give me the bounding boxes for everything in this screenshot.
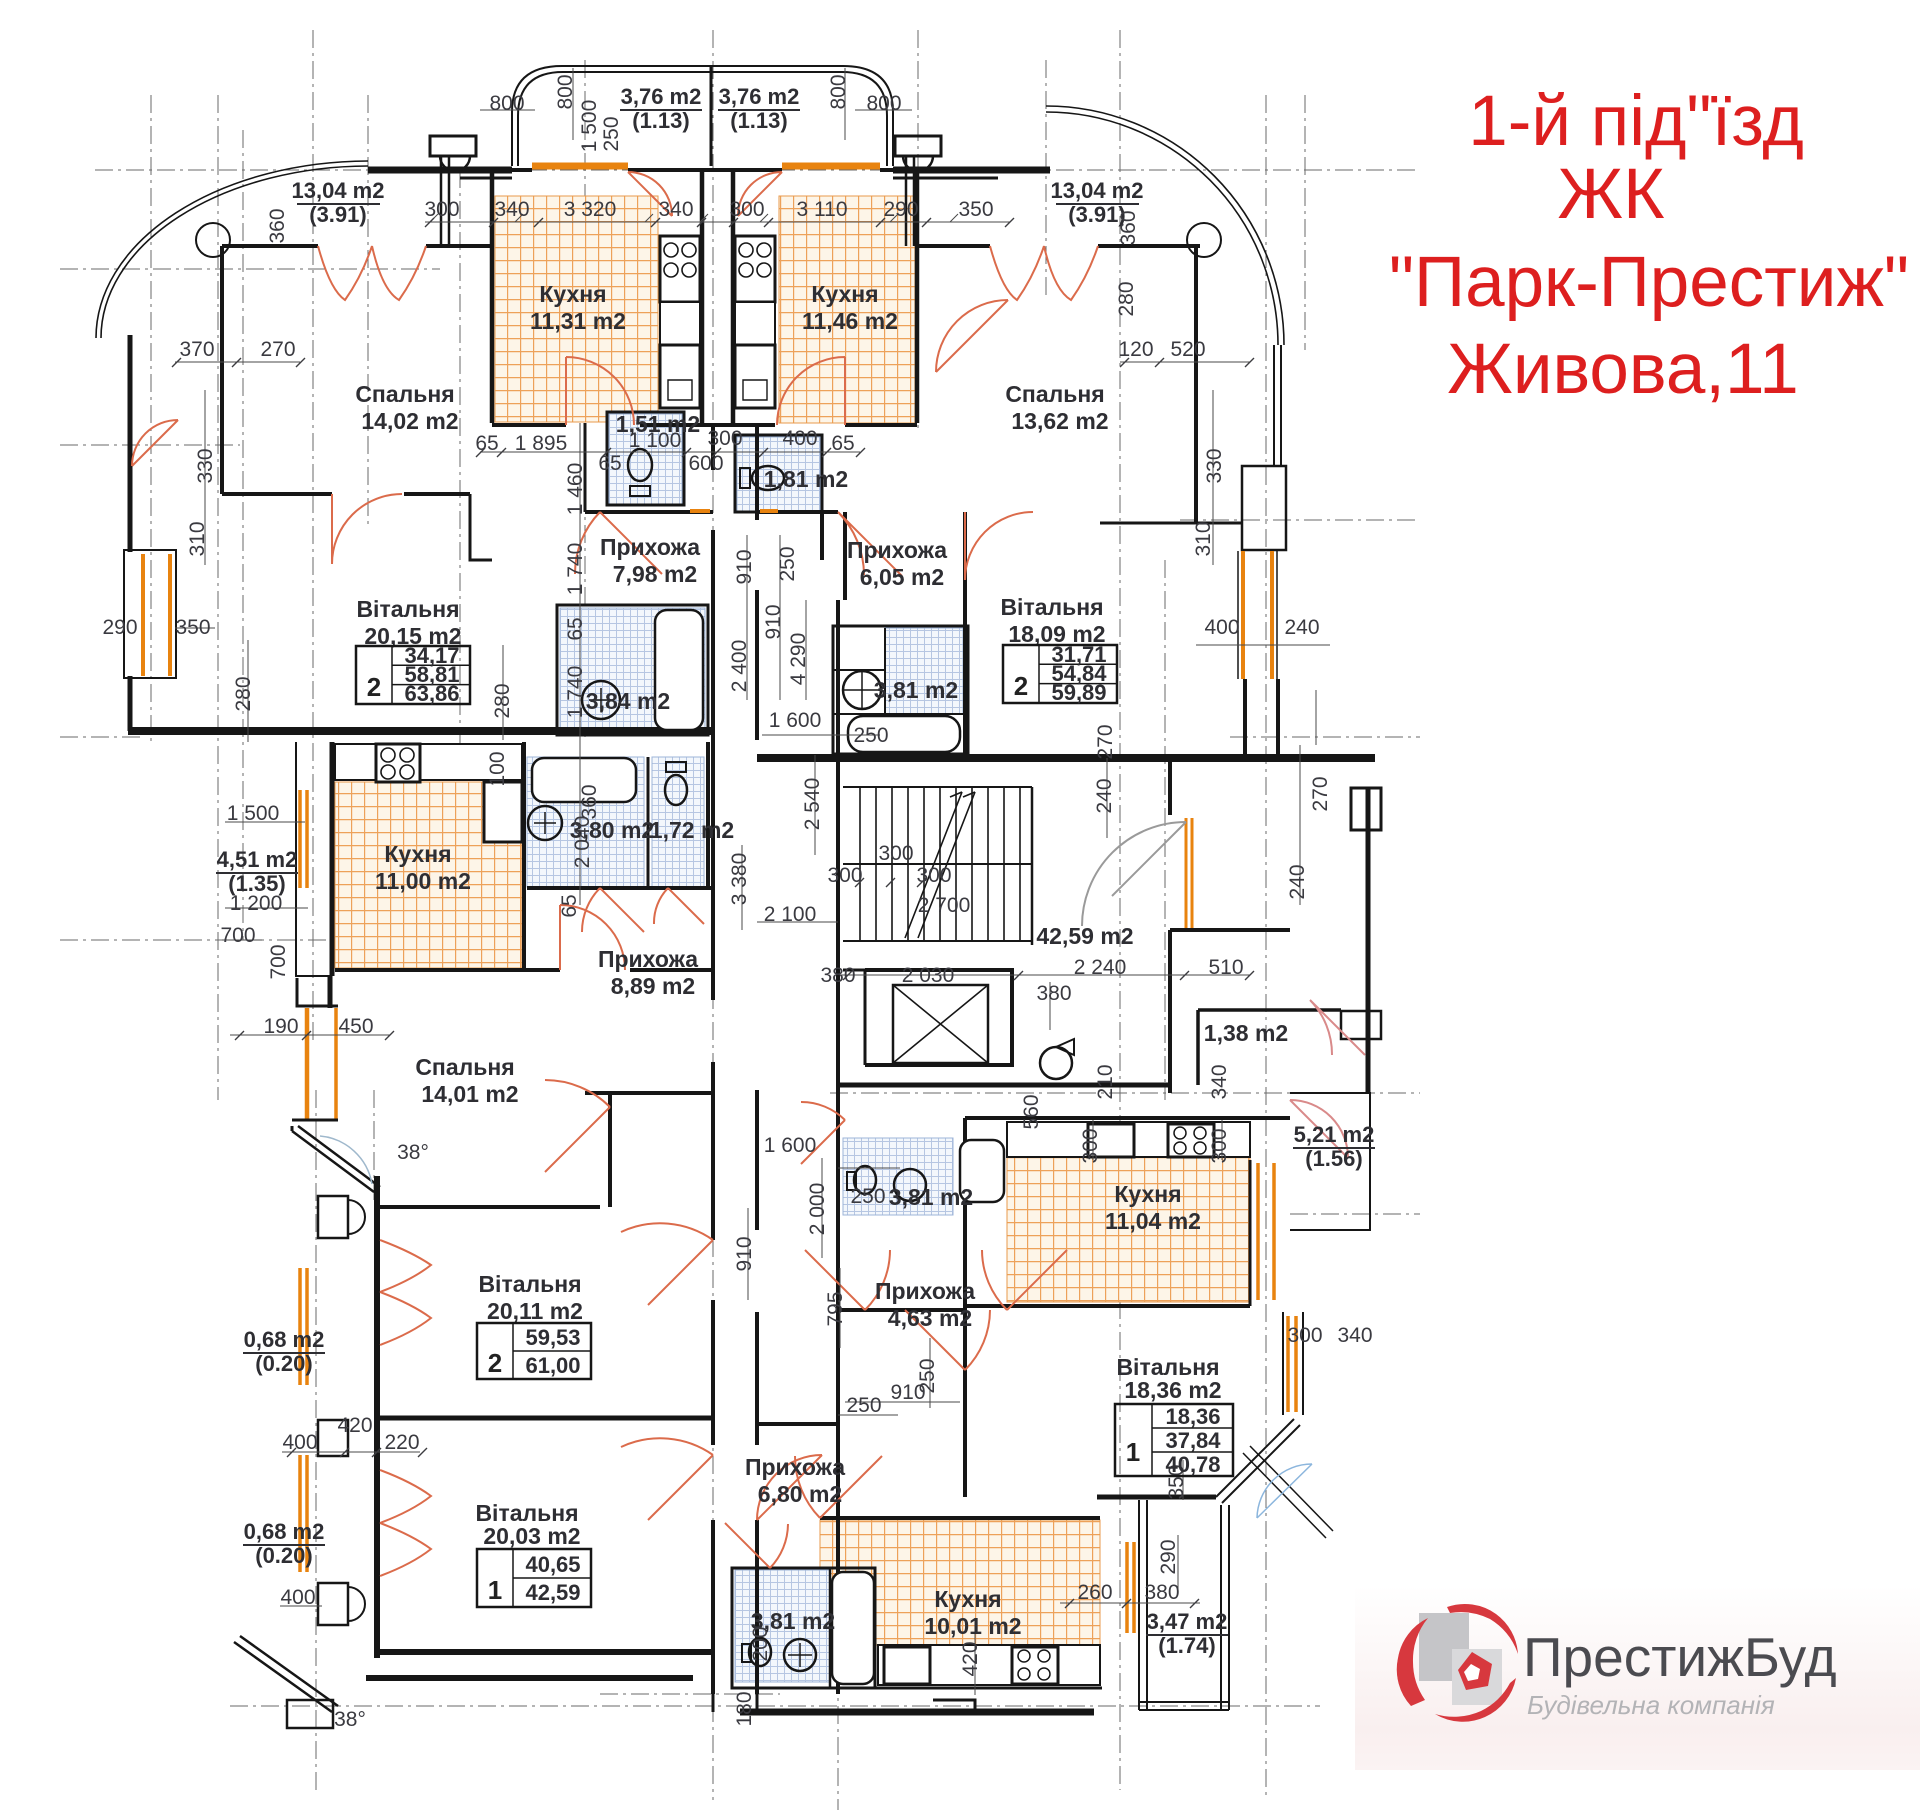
svg-text:420: 420 <box>337 1414 372 1437</box>
svg-text:3,84 m2: 3,84 m2 <box>586 688 670 714</box>
svg-text:Кухня: Кухня <box>934 1586 1001 1612</box>
svg-text:1 460: 1 460 <box>564 463 587 516</box>
svg-text:300: 300 <box>1287 1324 1322 1347</box>
svg-text:2: 2 <box>1014 671 1028 701</box>
svg-text:330: 330 <box>1203 448 1226 483</box>
svg-text:560: 560 <box>1020 1094 1043 1129</box>
svg-text:280: 280 <box>491 683 514 718</box>
svg-text:1 500: 1 500 <box>578 100 601 153</box>
svg-text:2 540: 2 540 <box>801 778 824 831</box>
svg-text:Прихожа: Прихожа <box>847 537 947 563</box>
svg-text:3,81 m2: 3,81 m2 <box>874 677 958 703</box>
svg-text:450: 450 <box>338 1015 373 1038</box>
svg-text:18,36: 18,36 <box>1165 1404 1220 1429</box>
svg-text:(1.74): (1.74) <box>1158 1633 1215 1658</box>
svg-text:42,59 m2: 42,59 m2 <box>1036 923 1133 949</box>
svg-text:420: 420 <box>959 1641 982 1676</box>
svg-text:300: 300 <box>827 864 862 887</box>
svg-text:250: 250 <box>846 1394 881 1417</box>
svg-text:Спальня: Спальня <box>355 381 454 407</box>
svg-text:5,21 m2: 5,21 m2 <box>1294 1122 1375 1147</box>
svg-text:300: 300 <box>1208 1128 1231 1163</box>
svg-text:400: 400 <box>282 1431 317 1454</box>
svg-text:1 740: 1 740 <box>564 543 587 596</box>
svg-text:270: 270 <box>260 338 295 361</box>
svg-text:1 740: 1 740 <box>564 666 587 719</box>
svg-text:Кухня: Кухня <box>384 841 451 867</box>
svg-text:280: 280 <box>232 676 255 711</box>
svg-text:6,05 m2: 6,05 m2 <box>860 564 944 590</box>
svg-text:7,98 m2: 7,98 m2 <box>613 561 697 587</box>
svg-text:3,47 m2: 3,47 m2 <box>1147 1609 1228 1634</box>
svg-text:61,00: 61,00 <box>525 1353 580 1378</box>
svg-text:2 000: 2 000 <box>806 1183 829 1236</box>
svg-text:800: 800 <box>827 74 850 109</box>
svg-text:65: 65 <box>564 617 587 640</box>
svg-text:340: 340 <box>658 198 693 221</box>
svg-text:Вітальня: Вітальня <box>356 596 459 622</box>
svg-text:600: 600 <box>688 452 723 475</box>
svg-text:38°: 38° <box>397 1141 429 1164</box>
svg-text:330: 330 <box>194 448 217 483</box>
svg-text:250: 250 <box>916 1358 939 1393</box>
svg-text:40,65: 40,65 <box>525 1552 580 1577</box>
svg-text:59,89: 59,89 <box>1051 680 1106 705</box>
svg-text:800: 800 <box>489 92 524 115</box>
svg-text:4,63 m2: 4,63 m2 <box>888 1305 972 1331</box>
svg-text:Прихожа: Прихожа <box>875 1278 975 1304</box>
svg-text:1 200: 1 200 <box>230 892 283 915</box>
svg-text:13,04 m2: 13,04 m2 <box>292 178 385 203</box>
svg-text:210: 210 <box>1094 1064 1117 1099</box>
svg-text:Прихожа: Прихожа <box>598 946 698 972</box>
svg-text:4,51 m2: 4,51 m2 <box>217 847 298 872</box>
svg-text:63,86: 63,86 <box>404 681 459 706</box>
svg-text:380: 380 <box>1144 1581 1179 1604</box>
svg-text:0,68 m2: 0,68 m2 <box>244 1519 325 1544</box>
svg-text:13,62 m2: 13,62 m2 <box>1011 408 1108 434</box>
svg-text:18,36 m2: 18,36 m2 <box>1124 1377 1221 1403</box>
svg-text:360: 360 <box>1117 210 1140 245</box>
svg-text:250: 250 <box>850 1185 885 1208</box>
svg-text:510: 510 <box>1208 956 1243 979</box>
svg-text:300: 300 <box>729 198 764 221</box>
svg-text:65: 65 <box>475 432 498 455</box>
svg-text:400: 400 <box>280 1586 315 1609</box>
svg-text:Кухня: Кухня <box>539 281 606 307</box>
svg-text:370: 370 <box>179 338 214 361</box>
svg-text:1 100: 1 100 <box>629 429 682 452</box>
svg-text:Спальня: Спальня <box>1005 381 1104 407</box>
svg-text:1-й під"їзд: 1-й під"їзд <box>1468 82 1804 161</box>
svg-text:65: 65 <box>558 894 581 917</box>
svg-text:190: 190 <box>263 1015 298 1038</box>
svg-text:3,76 m2: 3,76 m2 <box>621 84 702 109</box>
svg-text:1,81 m2: 1,81 m2 <box>764 466 848 492</box>
svg-text:290: 290 <box>1157 1539 1180 1574</box>
svg-text:360: 360 <box>578 784 601 819</box>
svg-text:910: 910 <box>733 1236 756 1271</box>
svg-text:120: 120 <box>1118 338 1153 361</box>
svg-text:Будівельна компанія: Будівельна компанія <box>1527 1690 1775 1720</box>
svg-text:3 110: 3 110 <box>797 198 848 221</box>
svg-text:11,00 m2: 11,00 m2 <box>375 868 471 894</box>
svg-text:3,81 m2: 3,81 m2 <box>889 1184 973 1210</box>
svg-text:310: 310 <box>186 521 209 556</box>
svg-text:(1.13): (1.13) <box>632 108 689 133</box>
svg-text:(3.91): (3.91) <box>309 202 366 227</box>
svg-text:59,53: 59,53 <box>525 1325 580 1350</box>
svg-text:6,80 m2: 6,80 m2 <box>758 1481 842 1507</box>
svg-text:3,76 m2: 3,76 m2 <box>719 84 800 109</box>
svg-text:250: 250 <box>600 116 623 151</box>
svg-text:ПрестижБуд: ПрестижБуд <box>1523 1626 1837 1688</box>
svg-text:240: 240 <box>1093 778 1116 813</box>
svg-text:10,01 m2: 10,01 m2 <box>924 1613 1021 1639</box>
svg-text:910: 910 <box>762 604 785 639</box>
svg-text:290: 290 <box>102 616 137 639</box>
svg-text:300: 300 <box>424 198 459 221</box>
svg-text:220: 220 <box>384 1431 419 1454</box>
svg-text:65: 65 <box>831 432 854 455</box>
svg-text:1 895: 1 895 <box>515 432 568 455</box>
svg-text:2: 2 <box>367 672 381 702</box>
svg-text:340: 340 <box>494 198 529 221</box>
svg-text:380: 380 <box>820 964 855 987</box>
svg-text:2 400: 2 400 <box>728 640 751 693</box>
svg-text:Прихожа: Прихожа <box>600 534 700 560</box>
svg-text:250: 250 <box>853 724 888 747</box>
svg-text:Спальня: Спальня <box>415 1054 514 1080</box>
svg-text:Прихожа: Прихожа <box>745 1454 845 1480</box>
svg-text:(0.20): (0.20) <box>255 1543 312 1568</box>
svg-text:340: 340 <box>1337 1324 1372 1347</box>
svg-text:4 290: 4 290 <box>787 633 810 686</box>
svg-text:300: 300 <box>707 427 742 450</box>
svg-text:3 320: 3 320 <box>564 198 617 221</box>
svg-text:(0.20): (0.20) <box>255 1351 312 1376</box>
svg-text:400: 400 <box>782 427 817 450</box>
svg-text:360: 360 <box>266 208 289 243</box>
svg-text:795: 795 <box>824 1291 847 1326</box>
svg-text:40,78: 40,78 <box>1165 1452 1220 1477</box>
svg-text:3 380: 3 380 <box>728 853 751 906</box>
svg-text:38°: 38° <box>334 1708 366 1731</box>
svg-text:2 030: 2 030 <box>902 964 955 987</box>
svg-text:Вітальня: Вітальня <box>1000 594 1103 620</box>
svg-text:520: 520 <box>1170 338 1205 361</box>
svg-text:100: 100 <box>486 751 509 786</box>
svg-text:250: 250 <box>776 546 799 581</box>
svg-text:20,03 m2: 20,03 m2 <box>483 1523 580 1549</box>
svg-text:180: 180 <box>733 1691 756 1726</box>
svg-text:240: 240 <box>1286 864 1309 899</box>
svg-text:700: 700 <box>220 924 255 947</box>
svg-text:700: 700 <box>267 944 290 979</box>
svg-text:65: 65 <box>598 452 621 475</box>
svg-text:260: 260 <box>1077 1581 1112 1604</box>
svg-text:300: 300 <box>916 864 951 887</box>
svg-text:270: 270 <box>1094 724 1117 759</box>
svg-text:300: 300 <box>878 842 913 865</box>
svg-text:ЖК: ЖК <box>1558 155 1665 234</box>
svg-text:20,11 m2: 20,11 m2 <box>487 1298 583 1324</box>
svg-text:14,02 m2: 14,02 m2 <box>361 408 458 434</box>
svg-text:2 040: 2 040 <box>571 816 594 869</box>
svg-text:(1.56): (1.56) <box>1305 1146 1362 1171</box>
svg-text:2 100: 2 100 <box>764 903 817 926</box>
svg-text:11,46 m2: 11,46 m2 <box>802 308 898 334</box>
svg-text:Живова,11: Живова,11 <box>1447 330 1798 409</box>
svg-text:"Парк-Престиж": "Парк-Престиж" <box>1389 243 1909 322</box>
svg-text:290: 290 <box>883 198 918 221</box>
svg-text:1: 1 <box>488 1575 502 1605</box>
svg-text:Вітальня: Вітальня <box>478 1271 581 1297</box>
svg-text:1,38 m2: 1,38 m2 <box>1204 1020 1288 1046</box>
svg-text:42,59: 42,59 <box>525 1580 580 1605</box>
svg-text:2 240: 2 240 <box>1074 956 1127 979</box>
svg-text:800: 800 <box>554 74 577 109</box>
svg-text:280: 280 <box>1115 281 1138 316</box>
svg-text:200: 200 <box>749 1626 772 1661</box>
svg-text:1 600: 1 600 <box>764 1134 817 1157</box>
svg-text:270: 270 <box>1309 776 1332 811</box>
svg-text:2 700: 2 700 <box>918 894 971 917</box>
svg-text:(1.13): (1.13) <box>730 108 787 133</box>
svg-text:11,04 m2: 11,04 m2 <box>1105 1208 1201 1234</box>
svg-text:240: 240 <box>1284 616 1319 639</box>
svg-text:13,04 m2: 13,04 m2 <box>1051 178 1144 203</box>
svg-text:Кухня: Кухня <box>1114 1181 1181 1207</box>
svg-text:350: 350 <box>958 198 993 221</box>
svg-text:1,72 m2: 1,72 m2 <box>650 817 734 843</box>
svg-text:380: 380 <box>1036 982 1071 1005</box>
svg-text:800: 800 <box>866 92 901 115</box>
svg-text:910: 910 <box>733 549 756 584</box>
svg-text:8,89 m2: 8,89 m2 <box>611 973 695 999</box>
svg-text:340: 340 <box>1208 1064 1231 1099</box>
svg-text:14,01 m2: 14,01 m2 <box>421 1081 518 1107</box>
svg-text:350: 350 <box>175 616 210 639</box>
svg-text:Кухня: Кухня <box>811 281 878 307</box>
svg-text:2: 2 <box>488 1348 502 1378</box>
svg-text:310: 310 <box>1192 521 1215 556</box>
svg-text:0,68 m2: 0,68 m2 <box>244 1327 325 1352</box>
svg-text:300: 300 <box>1079 1128 1102 1163</box>
svg-text:400: 400 <box>1204 616 1239 639</box>
svg-text:1 500: 1 500 <box>227 802 280 825</box>
svg-text:11,31 m2: 11,31 m2 <box>530 308 626 334</box>
svg-text:37,84: 37,84 <box>1165 1428 1221 1453</box>
svg-text:1: 1 <box>1126 1437 1140 1467</box>
svg-text:1 600: 1 600 <box>769 709 822 732</box>
